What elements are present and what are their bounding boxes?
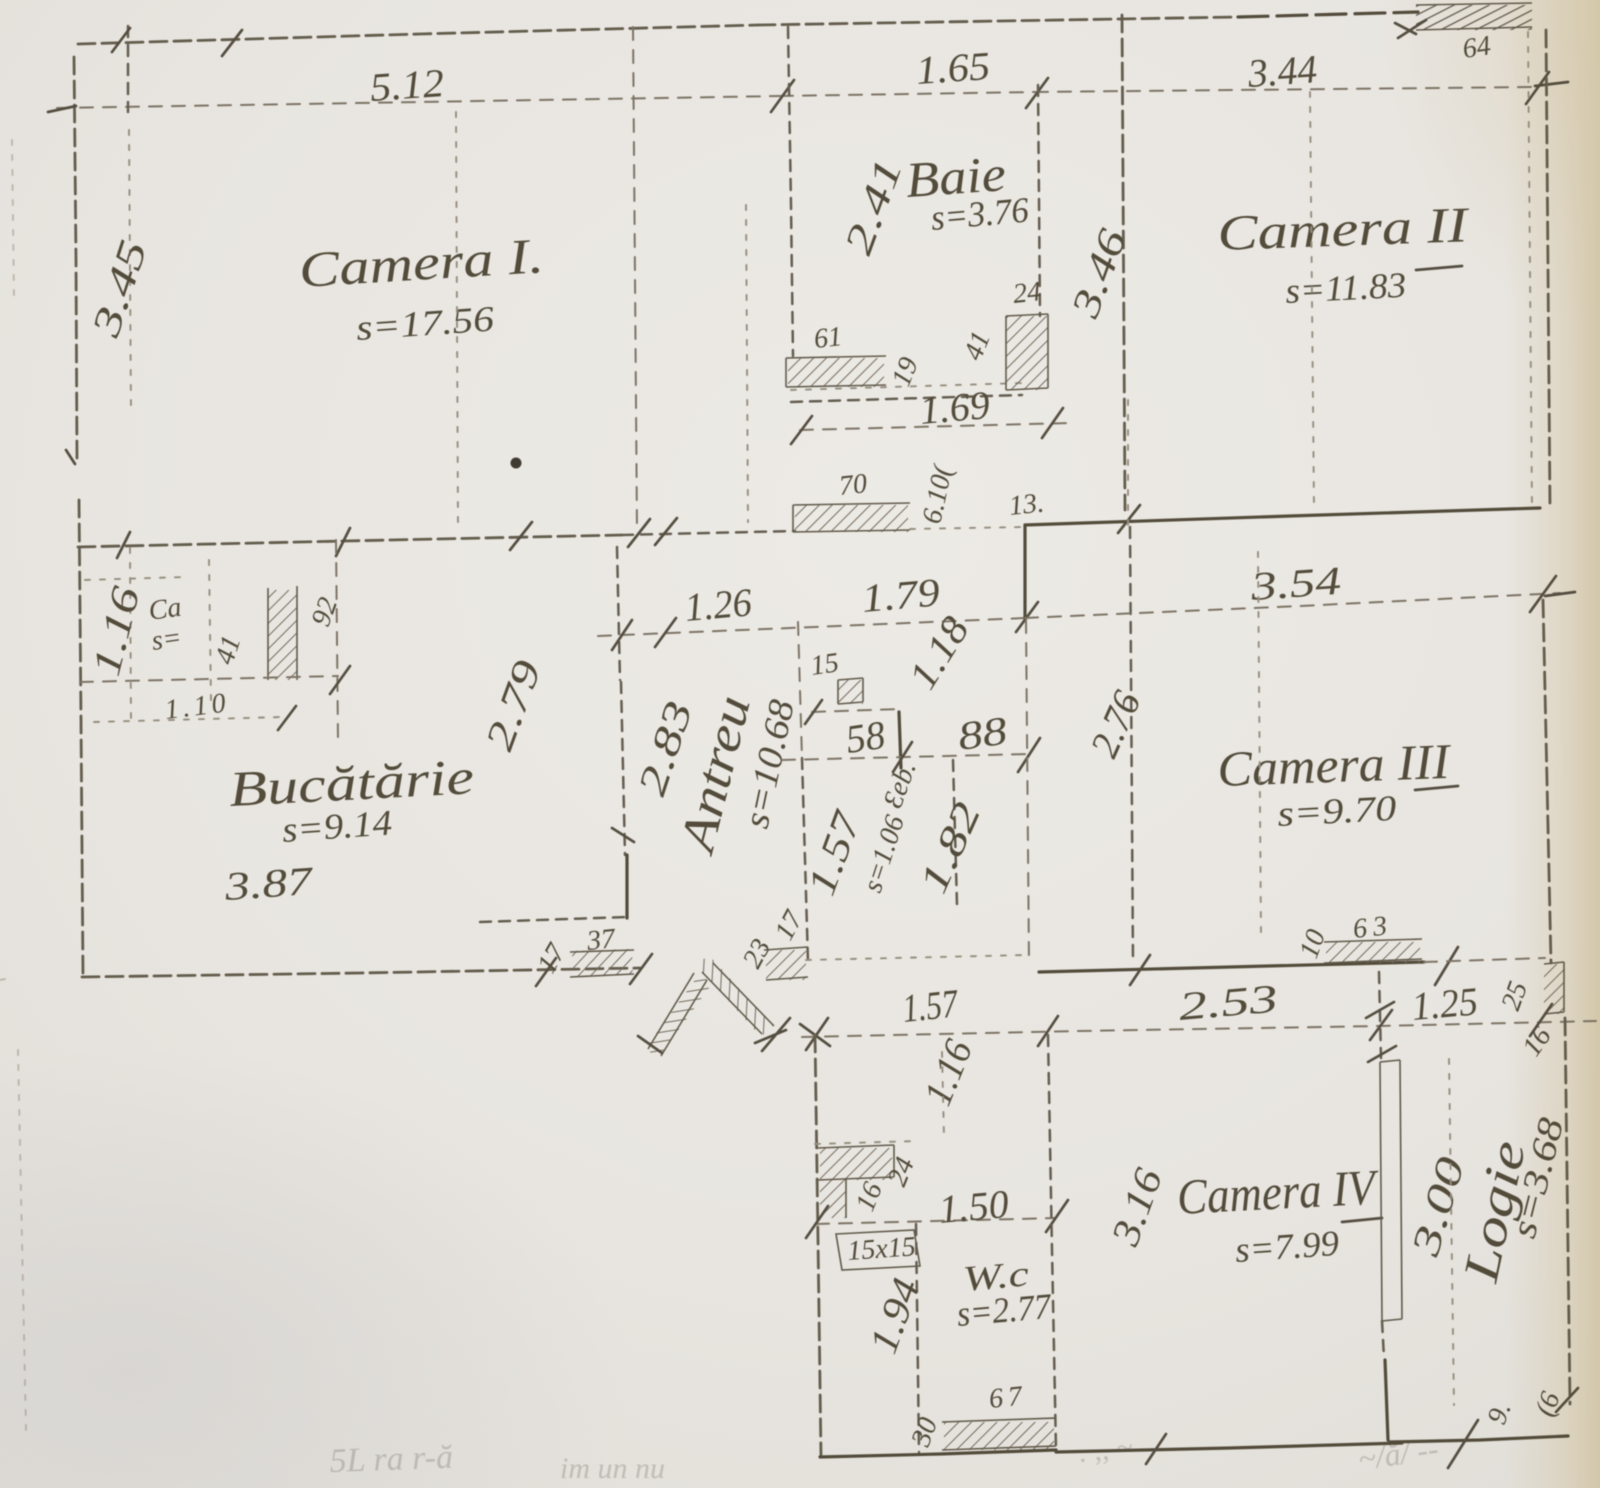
svg-text:s=11.83: s=11.83: [1284, 265, 1407, 311]
svg-text:3.87: 3.87: [222, 858, 316, 909]
svg-text:. ,, ~: . ,, ~: [1077, 1431, 1134, 1469]
svg-text:3.54: 3.54: [1248, 558, 1342, 609]
svg-text:67: 67: [987, 1380, 1028, 1415]
svg-text:70: 70: [837, 468, 868, 502]
svg-text:64: 64: [1461, 30, 1493, 65]
svg-text:s=: s=: [150, 622, 184, 657]
svg-text:1.65: 1.65: [914, 43, 991, 93]
svg-text:s=7.99: s=7.99: [1234, 1223, 1341, 1270]
svg-text:1.26: 1.26: [683, 579, 754, 630]
svg-text:63: 63: [1351, 910, 1394, 945]
svg-text:s=9.14: s=9.14: [281, 802, 394, 850]
svg-text:s=2.77: s=2.77: [955, 1286, 1054, 1334]
svg-text:1.79: 1.79: [860, 569, 942, 621]
svg-text:1.57: 1.57: [900, 980, 961, 1031]
svg-text:1.25: 1.25: [1410, 978, 1480, 1029]
svg-text:24: 24: [1011, 276, 1042, 310]
svg-text:88: 88: [955, 708, 1010, 759]
svg-text:s=9.70: s=9.70: [1276, 788, 1397, 834]
svg-text:Camera IV: Camera IV: [1176, 1158, 1382, 1225]
svg-text:5.12: 5.12: [368, 60, 445, 110]
svg-text:15: 15: [809, 647, 841, 682]
svg-text:3.44: 3.44: [1246, 46, 1319, 96]
svg-text:Camera III: Camera III: [1216, 733, 1452, 797]
svg-text:2.53: 2.53: [1177, 976, 1280, 1029]
svg-text:s=3.76: s=3.76: [929, 190, 1030, 238]
svg-text:1.50: 1.50: [937, 1181, 1011, 1232]
svg-text:1.69: 1.69: [918, 382, 992, 433]
svg-text:im un nu: im un nu: [560, 1452, 665, 1485]
svg-text:61: 61: [812, 321, 843, 355]
svg-text:15x15: 15x15: [846, 1231, 916, 1267]
svg-text:5L ra r-ă: 5L ra r-ă: [329, 1439, 454, 1480]
svg-text:13.: 13.: [1007, 487, 1045, 521]
svg-text:37: 37: [584, 923, 617, 957]
svg-text:58: 58: [843, 712, 888, 762]
svg-text:Camera II: Camera II: [1216, 196, 1471, 261]
